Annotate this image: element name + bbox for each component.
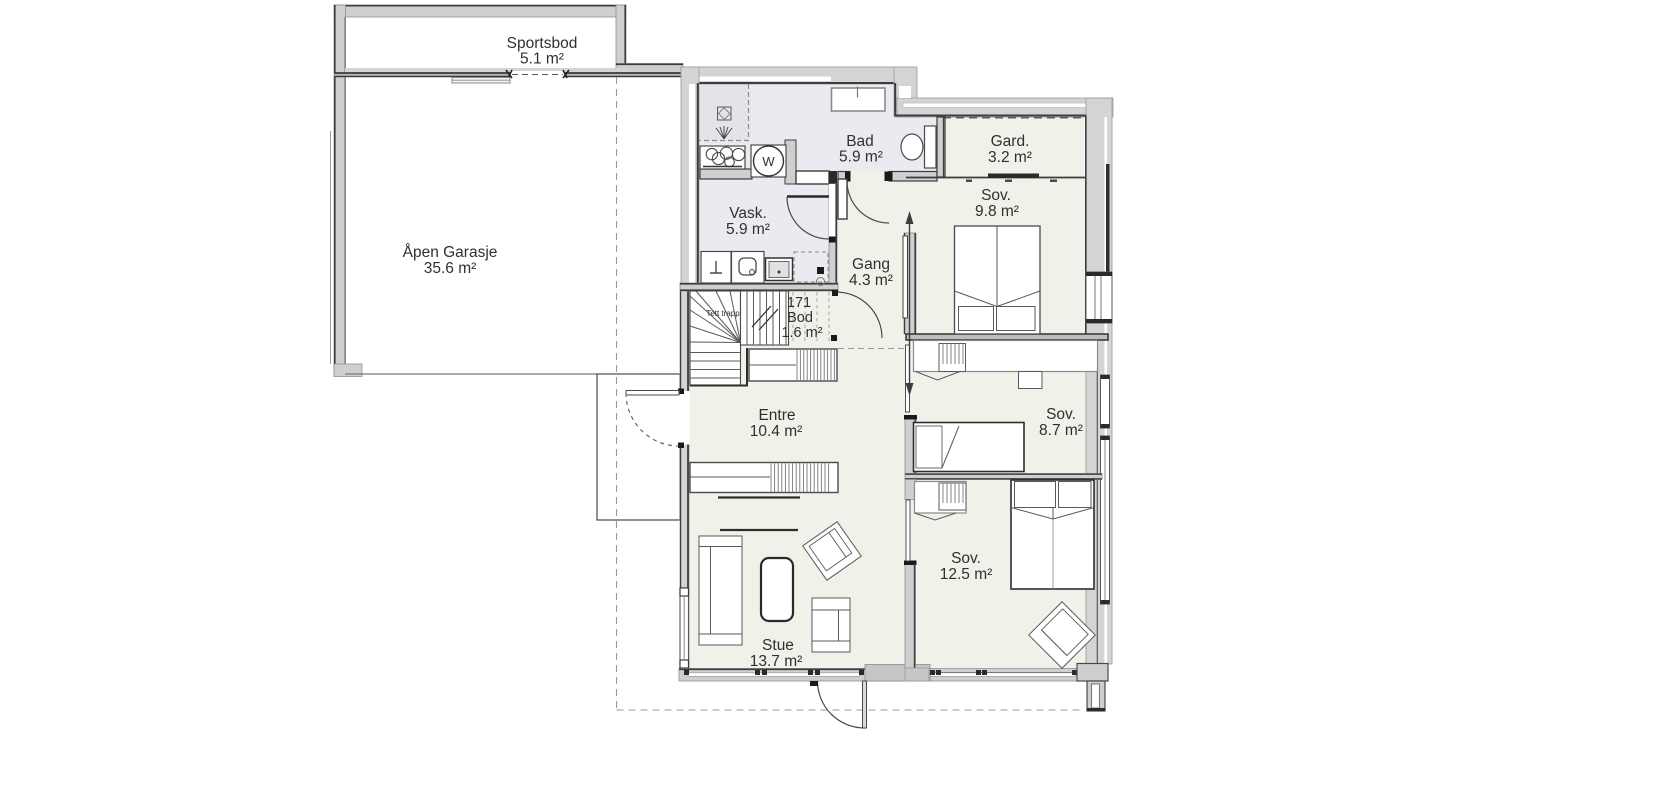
svg-text:Sov.: Sov.: [1046, 406, 1076, 423]
svg-text:Gard.: Gard.: [991, 133, 1030, 150]
svg-text:35.6 m²: 35.6 m²: [424, 260, 477, 277]
svg-text:Vask.: Vask.: [729, 205, 767, 222]
svg-text:10.4 m²: 10.4 m²: [750, 423, 803, 440]
svg-text:8.7 m²: 8.7 m²: [1039, 422, 1083, 439]
svg-text:W: W: [762, 154, 775, 169]
svg-text:4.3 m²: 4.3 m²: [849, 272, 893, 289]
svg-text:13.7 m²: 13.7 m²: [750, 653, 803, 670]
svg-text:5.9 m²: 5.9 m²: [839, 149, 883, 166]
svg-text:Bad: Bad: [846, 133, 874, 150]
svg-text:3.2 m²: 3.2 m²: [988, 149, 1032, 166]
svg-text:12.5 m²: 12.5 m²: [940, 566, 993, 583]
svg-text:5.9 m²: 5.9 m²: [726, 221, 770, 238]
svg-text:5.1 m²: 5.1 m²: [520, 51, 564, 68]
svg-text:Tett trapp: Tett trapp: [706, 309, 740, 318]
svg-text:Entre: Entre: [758, 407, 795, 424]
svg-text:Bod: Bod: [787, 310, 813, 326]
svg-text:Åpen Garasje: Åpen Garasje: [403, 244, 498, 261]
svg-text:Gang: Gang: [852, 256, 890, 273]
svg-text:Sportsbod: Sportsbod: [507, 35, 578, 52]
svg-text:Stue: Stue: [762, 637, 794, 654]
svg-text:Sov.: Sov.: [981, 187, 1011, 204]
svg-text:171: 171: [787, 295, 811, 311]
svg-text:Sov.: Sov.: [951, 550, 981, 567]
svg-text:1.6 m²: 1.6 m²: [781, 325, 822, 341]
svg-text:9.8 m²: 9.8 m²: [975, 203, 1019, 220]
